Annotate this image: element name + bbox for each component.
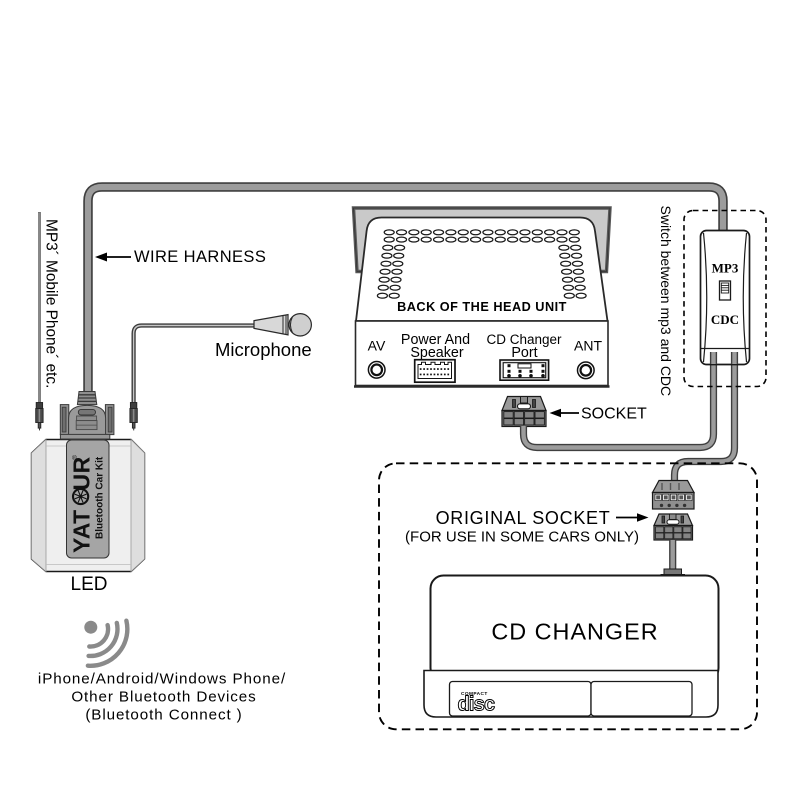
svg-text:LED: LED [71,574,108,595]
svg-text:Speaker: Speaker [410,345,463,361]
svg-text:Other Bluetooth Devices: Other Bluetooth Devices [71,689,256,706]
svg-text:ORIGINAL SOCKET: ORIGINAL SOCKET [436,508,611,528]
svg-text:(Bluetooth Connect ): (Bluetooth Connect ) [85,707,242,724]
svg-text:ANT: ANT [574,338,602,354]
svg-text:Port: Port [511,345,537,361]
svg-text:MP3: MP3 [712,261,739,276]
svg-text:disc: disc [458,694,495,716]
svg-text:Switch between mp3 and CDC: Switch between mp3 and CDC [658,206,674,397]
svg-text:YAT: YAT [69,509,95,553]
svg-text:®: ® [72,454,77,462]
svg-text:CDC: CDC [711,312,739,327]
svg-text:SOCKET: SOCKET [581,405,647,422]
svg-text:WIRE HARNESS: WIRE HARNESS [134,248,266,266]
svg-text:CD CHANGER: CD CHANGER [491,619,658,645]
svg-text:(FOR USE IN SOME CARS ONLY): (FOR USE IN SOME CARS ONLY) [405,529,639,546]
svg-text:Bluetooth Car Kit: Bluetooth Car Kit [95,456,106,539]
svg-text:iPhone/Android/Windows Phone/: iPhone/Android/Windows Phone/ [38,671,286,688]
svg-text:Microphone: Microphone [215,339,312,360]
svg-text:AV: AV [368,338,386,354]
svg-text:BACK OF THE HEAD UNIT: BACK OF THE HEAD UNIT [397,300,567,314]
svg-text:MP3´ Mobile Phone´ etc.: MP3´ Mobile Phone´ etc. [43,219,60,388]
